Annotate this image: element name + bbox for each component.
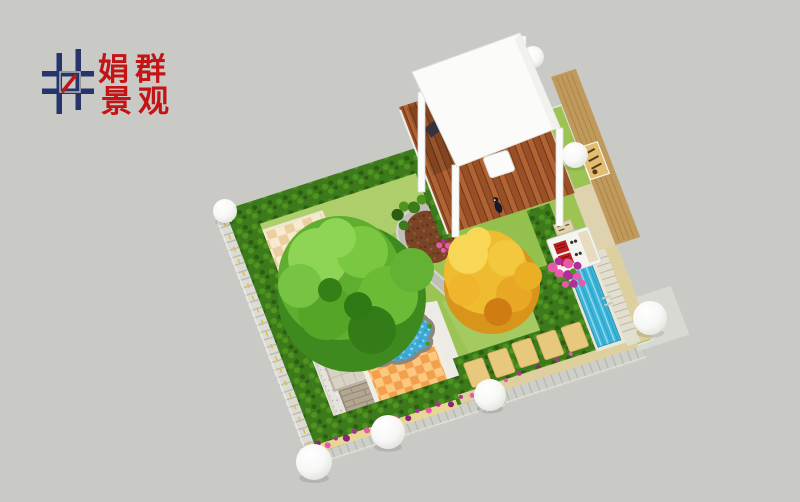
render-canvas: 娟群 景观 bbox=[0, 0, 800, 502]
company-logo: 娟群 景观 bbox=[42, 49, 175, 120]
sphere-lamp bbox=[633, 301, 667, 335]
sphere-lamp bbox=[474, 379, 506, 411]
garden-design-rendering: 娟群 景观 bbox=[0, 0, 800, 502]
logo-text-line2: 景观 bbox=[101, 84, 175, 120]
sphere-lamp bbox=[213, 199, 237, 223]
logo-text-line1: 娟群 bbox=[98, 52, 172, 88]
sphere-lamp bbox=[562, 142, 588, 168]
sphere-lamp bbox=[371, 415, 405, 449]
sphere-lamp bbox=[296, 444, 332, 480]
